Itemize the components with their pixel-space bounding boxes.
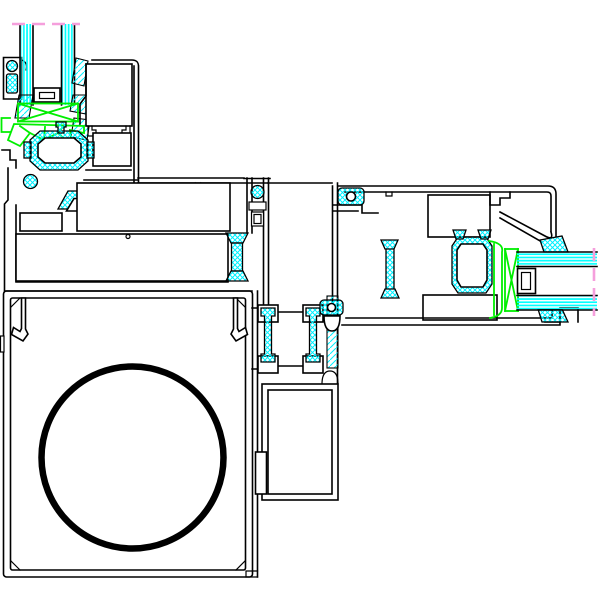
section-drawing <box>0 0 600 600</box>
bottom-box-profile <box>1 291 258 577</box>
s-break-top-flare <box>226 233 248 243</box>
rail-chamber-small <box>20 213 62 231</box>
glass-pane-bottom <box>517 296 597 309</box>
glazing-gasket-right <box>489 241 518 318</box>
screw-channel <box>24 175 38 189</box>
connector-bracket <box>333 205 378 213</box>
glass-pane-outer <box>21 24 32 105</box>
vertical-glazing-unit <box>15 24 90 140</box>
sash-bottom-rail <box>2 150 268 291</box>
mullion-side-slot <box>256 452 267 494</box>
spacer-right-core <box>522 273 531 290</box>
thermal-break-ibeam-left <box>261 308 275 362</box>
gasket-block-right-cross <box>505 249 518 311</box>
circular-tube-bore <box>42 367 224 549</box>
column-slot-a <box>249 202 266 210</box>
connector-screw <box>347 192 356 201</box>
frame-divider-hook <box>490 192 510 205</box>
column-screw-port <box>251 186 264 199</box>
mullion-bump <box>322 371 338 384</box>
octagon-top-stud <box>56 122 66 133</box>
octagon-core <box>38 138 81 163</box>
s-break-bottom-flare <box>226 271 248 281</box>
spacer-core <box>40 93 55 99</box>
bead-chamber-low <box>93 133 131 166</box>
glazing-bead-profile <box>80 60 139 186</box>
horizontal-glazing-unit <box>517 252 597 310</box>
glazing-wedge-top <box>540 236 568 252</box>
glass-pane-top <box>517 253 597 266</box>
rail-chamber-main <box>77 183 230 231</box>
mullion-vertical <box>252 296 343 500</box>
octagon-left-nub <box>24 142 31 158</box>
mullion-box-inner <box>268 390 332 494</box>
clip-thermal-insert <box>7 74 18 93</box>
mullion-arch <box>324 316 340 331</box>
cad-section-canvas <box>0 0 600 600</box>
thermal-post-left <box>381 240 399 298</box>
gasket-clip-left <box>2 118 11 132</box>
clip-screw-port <box>7 61 18 72</box>
frame-chamber-b <box>423 295 497 320</box>
octagon-right-core <box>457 244 487 287</box>
frame-slope <box>500 212 552 242</box>
glass-pane-inner <box>62 24 73 105</box>
wall-notch <box>1 336 5 352</box>
octagon-right-nub <box>87 142 94 158</box>
glazing-wedge-bottom <box>538 309 568 322</box>
thermal-break-s-profile <box>232 243 243 271</box>
thermal-break-ibeam-right <box>306 308 320 362</box>
rail-chamber-long <box>16 234 228 281</box>
mullion-clip-screw <box>328 304 336 312</box>
bead-chamber-top <box>86 64 132 126</box>
